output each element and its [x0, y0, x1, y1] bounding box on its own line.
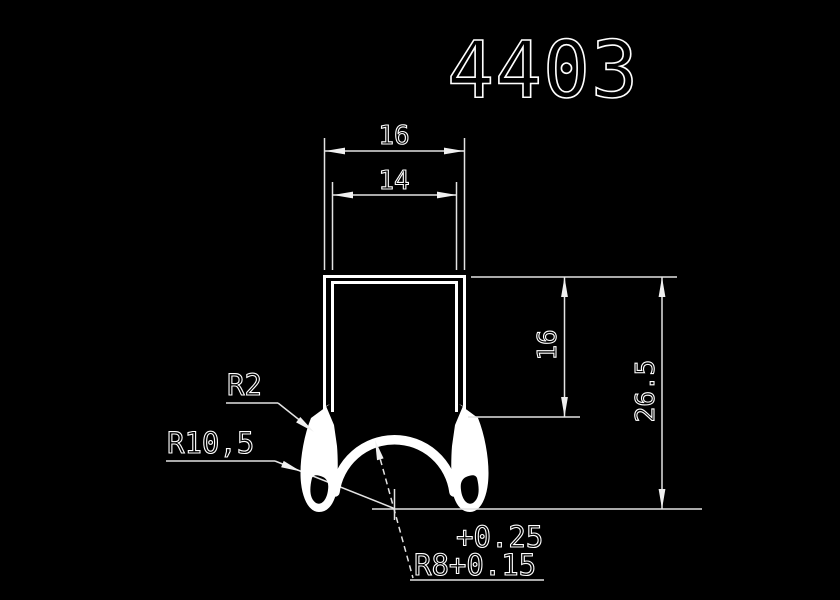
dim-text-outer-width: 16: [378, 121, 409, 151]
callout-arch-radius: R8+0.15: [414, 548, 536, 582]
profile-drawing: 4403 16 14 16 26.5 R2 R10,5 +0.25 R8+0.1…: [0, 0, 840, 600]
callout-foot-radius: R10,5: [167, 426, 254, 460]
dim-text-wall-height: 16: [533, 329, 563, 360]
cad-drawing-canvas[interactable]: 4403 16 14 16 26.5 R2 R10,5 +0.25 R8+0.1…: [0, 0, 840, 600]
callout-step-radius: R2: [227, 368, 262, 402]
drawing-background: [0, 0, 840, 600]
drawing-number: 4403: [447, 26, 639, 116]
dim-text-total-height: 26.5: [631, 360, 661, 423]
dim-text-inner-width: 14: [378, 166, 409, 196]
